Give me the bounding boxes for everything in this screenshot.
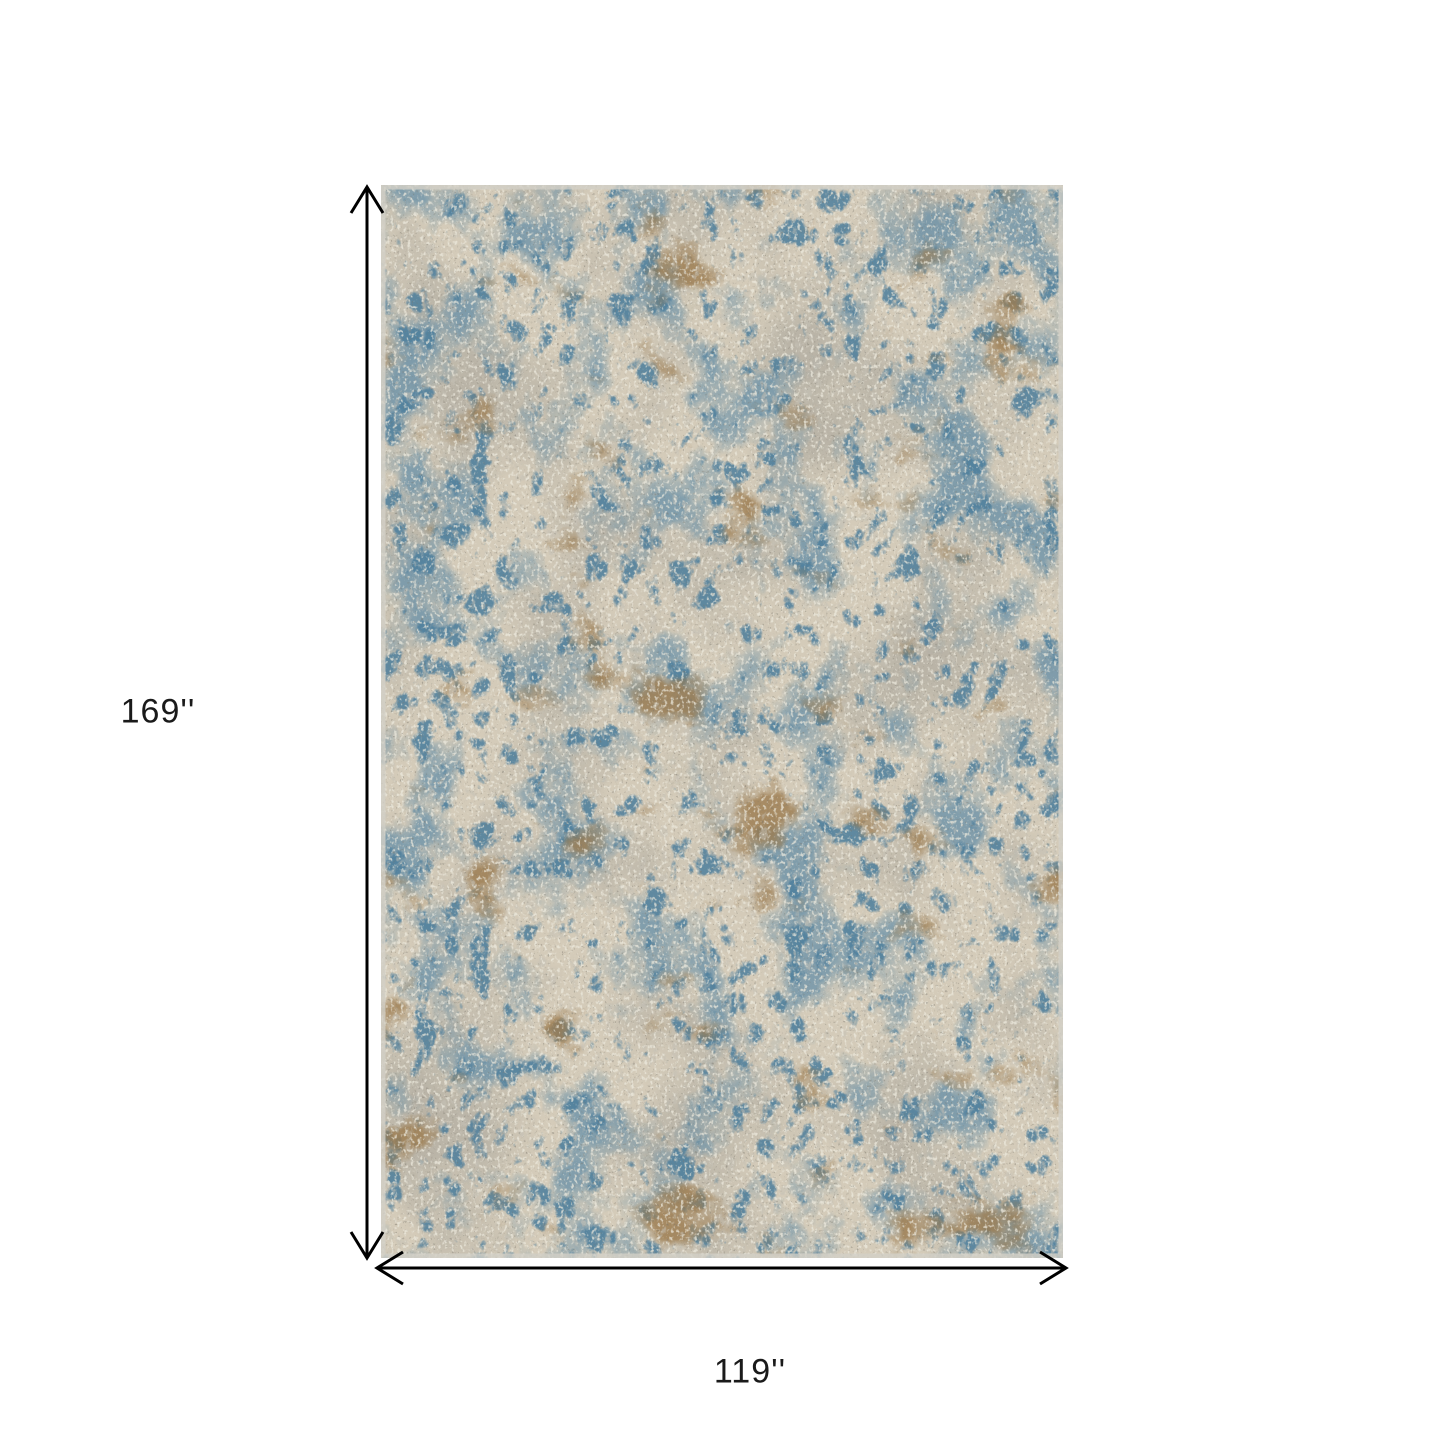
height-dimension-arrow-icon [351, 187, 383, 1258]
rug-image [381, 185, 1063, 1258]
product-dimension-diagram: 169'' 119'' [0, 0, 1445, 1445]
rug-texture-layers [381, 185, 1063, 1258]
width-dimension-label: 119'' [714, 1353, 786, 1392]
height-dimension-label: 169'' [121, 693, 196, 732]
